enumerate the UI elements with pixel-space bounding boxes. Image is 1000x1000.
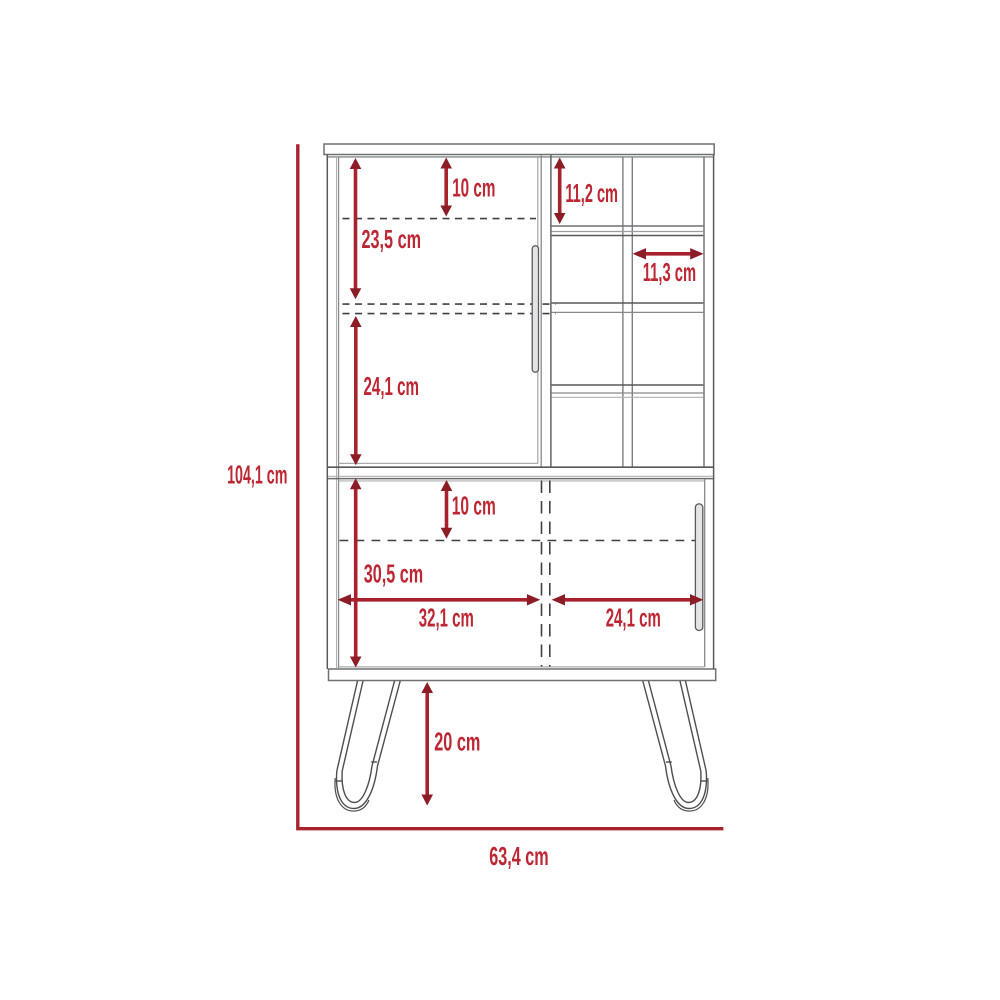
svg-text:24,1 cm: 24,1 cm: [364, 371, 420, 401]
svg-text:32,1 cm: 32,1 cm: [419, 602, 474, 632]
svg-text:24,1 cm: 24,1 cm: [606, 602, 661, 632]
svg-text:10 cm: 10 cm: [452, 491, 496, 521]
svg-text:104,1 cm: 104,1 cm: [227, 459, 287, 489]
svg-text:11,2 cm: 11,2 cm: [565, 178, 618, 208]
svg-text:10 cm: 10 cm: [452, 172, 495, 202]
svg-text:30,5 cm: 30,5 cm: [364, 558, 423, 588]
svg-text:11,3 cm: 11,3 cm: [643, 257, 696, 287]
svg-text:23,5 cm: 23,5 cm: [362, 224, 422, 254]
svg-text:20 cm: 20 cm: [434, 727, 480, 757]
svg-text:63,4 cm: 63,4 cm: [489, 841, 548, 871]
